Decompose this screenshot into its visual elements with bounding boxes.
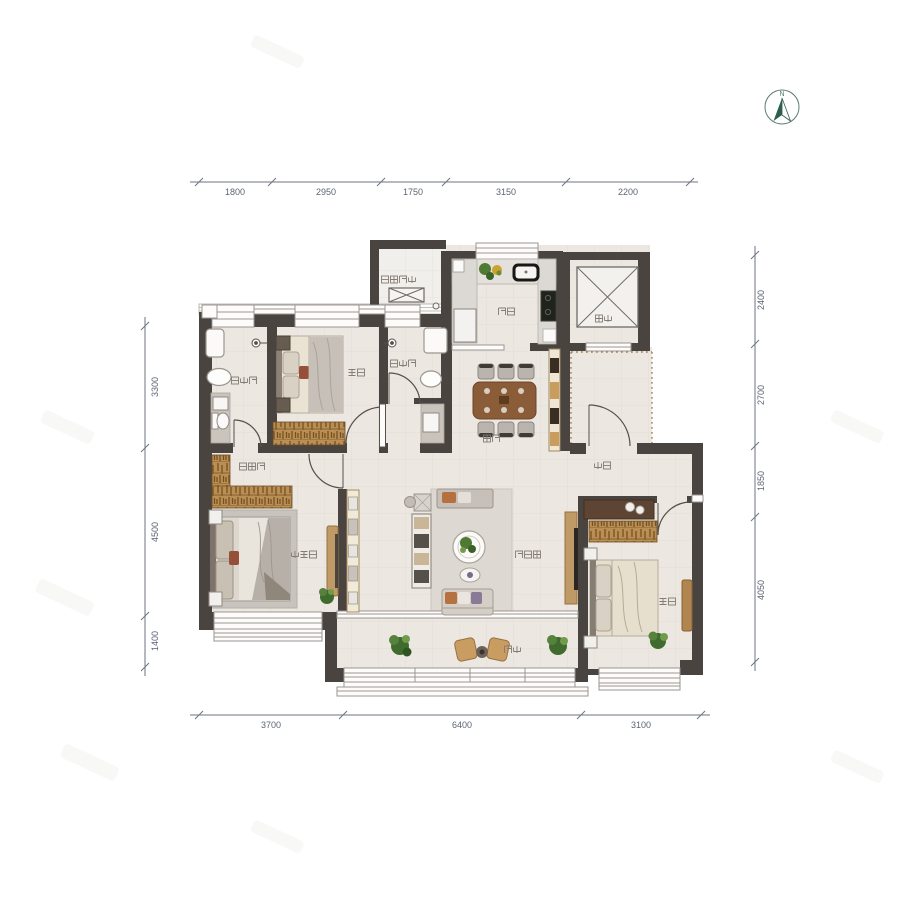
svg-text:2400: 2400 [756,290,766,310]
svg-text:3150: 3150 [496,187,516,197]
svg-text:4050: 4050 [756,580,766,600]
svg-text:2700: 2700 [756,385,766,405]
svg-text:2200: 2200 [618,187,638,197]
svg-text:1800: 1800 [225,187,245,197]
svg-text:1400: 1400 [150,631,160,651]
svg-text:6400: 6400 [452,720,472,730]
svg-text:3300: 3300 [150,377,160,397]
svg-text:1750: 1750 [403,187,423,197]
svg-text:3100: 3100 [631,720,651,730]
svg-text:3700: 3700 [261,720,281,730]
svg-text:N: N [779,91,784,98]
svg-text:1850: 1850 [756,471,766,491]
svg-text:4500: 4500 [150,522,160,542]
svg-text:2950: 2950 [316,187,336,197]
